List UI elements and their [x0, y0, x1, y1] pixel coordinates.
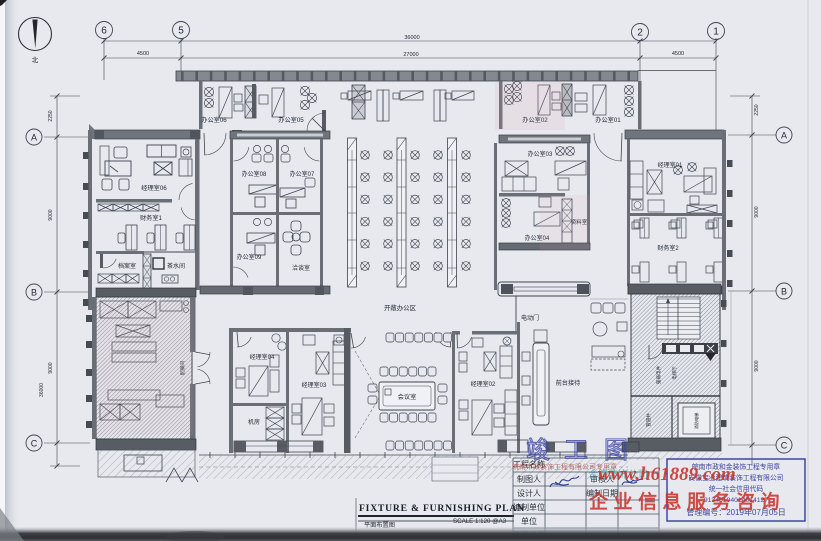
svg-text:6: 6 [101, 26, 107, 37]
svg-text:消防电梯: 消防电梯 [693, 413, 700, 430]
svg-text:办公室08: 办公室08 [242, 170, 267, 178]
svg-text:企业信息服务咨询: 企业信息服务咨询 [588, 490, 785, 513]
svg-text:4500: 4500 [137, 51, 149, 57]
svg-text:办公室05: 办公室05 [278, 116, 304, 124]
svg-text:强弱电井: 强弱电井 [655, 365, 662, 384]
svg-text:2250: 2250 [48, 110, 54, 121]
svg-text:经理室06: 经理室06 [141, 184, 167, 192]
svg-text:洽谈室: 洽谈室 [292, 264, 310, 272]
svg-text:9000: 9000 [754, 360, 760, 371]
svg-text:北: 北 [32, 56, 39, 64]
svg-text:经理室03: 经理室03 [302, 381, 327, 389]
svg-text:办公室03: 办公室03 [528, 150, 553, 158]
svg-text:办公室06: 办公室06 [201, 116, 227, 124]
svg-text:www.h61889.com: www.h61889.com [598, 464, 736, 485]
svg-text:SCALE 1:120 @A3: SCALE 1:120 @A3 [453, 518, 507, 525]
svg-text:办公室01: 办公室01 [595, 116, 621, 124]
svg-text:C: C [781, 441, 788, 451]
svg-text:茶水间: 茶水间 [167, 262, 185, 270]
svg-text:档案室: 档案室 [118, 262, 136, 270]
svg-text:经理室02: 经理室02 [471, 380, 496, 388]
svg-text:工: 工 [564, 437, 588, 464]
svg-text:财务室2: 财务室2 [657, 244, 679, 252]
svg-text:机房: 机房 [248, 418, 260, 426]
svg-text:27000: 27000 [403, 52, 418, 58]
svg-text:设计人: 设计人 [517, 488, 541, 498]
svg-text:开敞办公区: 开敞办公区 [384, 303, 417, 312]
svg-text:竣: 竣 [526, 437, 550, 464]
svg-text:编制单位: 编制单位 [513, 502, 545, 512]
svg-text:图: 图 [604, 437, 628, 464]
svg-text:2250: 2250 [754, 104, 760, 115]
svg-text:办公室07: 办公室07 [290, 170, 315, 178]
svg-text:管道井: 管道井 [645, 413, 652, 427]
svg-text:单位: 单位 [521, 516, 537, 526]
svg-text:A: A [781, 131, 787, 141]
svg-text:9000: 9000 [48, 209, 54, 220]
svg-text:36000: 36000 [39, 383, 45, 397]
svg-text:1: 1 [713, 27, 719, 38]
svg-text:36000: 36000 [404, 35, 419, 41]
svg-text:C: C [31, 439, 38, 449]
svg-text:经理室04: 经理室04 [250, 353, 275, 361]
svg-text:A: A [31, 133, 37, 143]
svg-text:电动门: 电动门 [521, 314, 539, 322]
svg-text:B: B [781, 287, 787, 297]
svg-text:5: 5 [178, 26, 184, 37]
svg-text:财务室1: 财务室1 [140, 214, 163, 222]
svg-text:经理室01: 经理室01 [658, 161, 683, 169]
svg-text:办公室09: 办公室09 [237, 253, 262, 261]
svg-text:B: B [31, 288, 37, 298]
svg-text:电梯厅: 电梯厅 [671, 366, 678, 380]
svg-text:4500: 4500 [672, 51, 684, 57]
svg-text:前台接待: 前台接待 [556, 379, 581, 387]
svg-text:2: 2 [637, 28, 643, 39]
svg-text:会议室: 会议室 [398, 393, 417, 401]
svg-text:FIXTURE & FURNISHING PLAN: FIXTURE & FURNISHING PLAN [359, 503, 525, 514]
svg-text:9000: 9000 [754, 206, 760, 217]
svg-text:制图人: 制图人 [517, 474, 541, 484]
svg-text:9000: 9000 [48, 362, 54, 373]
